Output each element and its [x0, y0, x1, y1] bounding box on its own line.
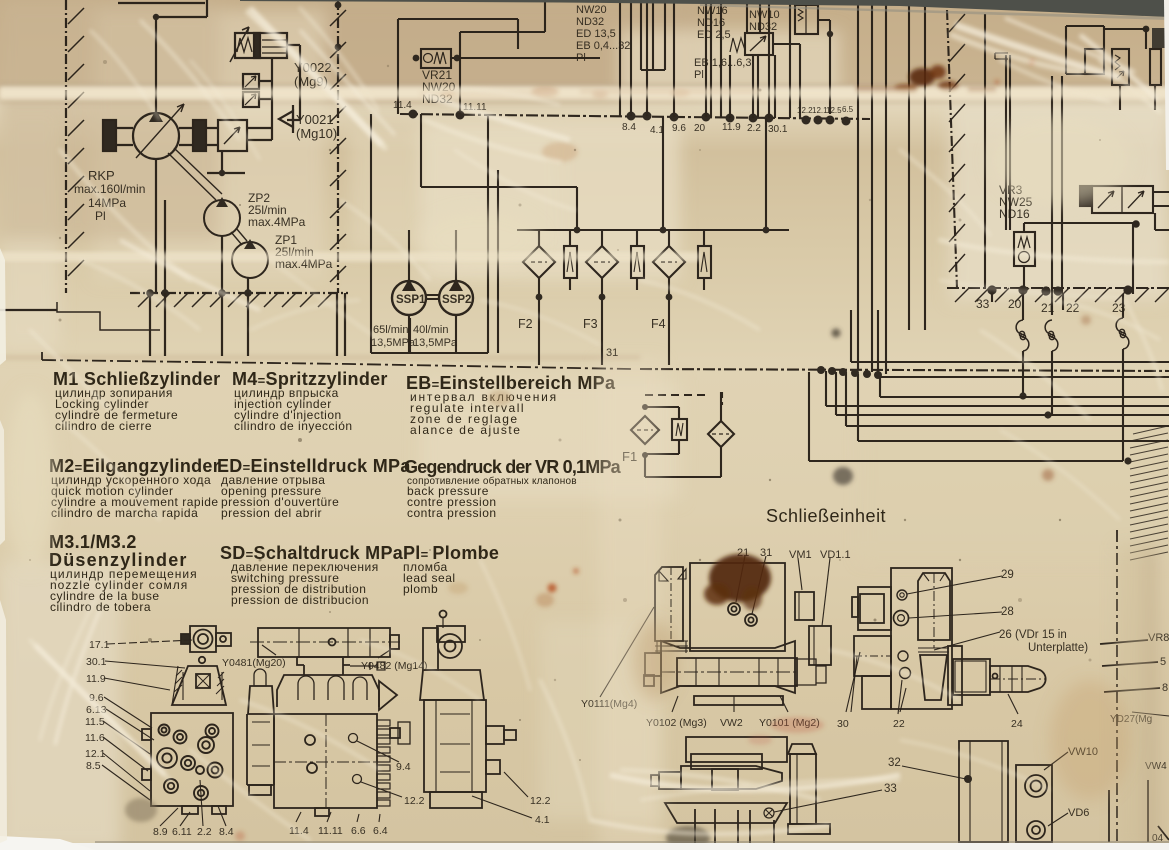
svg-text:21: 21	[1041, 301, 1055, 315]
svg-text:30: 30	[837, 718, 849, 730]
svg-text:30.1: 30.1	[86, 656, 107, 668]
svg-text:Gegendruck der VR 0,1MPa: Gegendruck der VR 0,1MPa	[404, 457, 622, 477]
svg-text:Y0481(Mg20): Y0481(Mg20)	[222, 657, 286, 669]
svg-text:ED 13,5: ED 13,5	[576, 28, 616, 40]
svg-text:11.9: 11.9	[86, 673, 106, 685]
svg-text:12.2: 12.2	[797, 106, 813, 115]
svg-text:VM1: VM1	[789, 549, 812, 561]
svg-text:cilindro de marcha rapida: cilindro de marcha rapida	[51, 506, 198, 520]
svg-text:max.160l/min: max.160l/min	[74, 182, 145, 196]
svg-text:8.9: 8.9	[153, 826, 168, 838]
svg-text:8.4: 8.4	[622, 122, 636, 133]
svg-text:Schließeinheit: Schließeinheit	[766, 506, 886, 526]
svg-text:6.6: 6.6	[351, 825, 366, 837]
svg-text:alance de ajuste: alance de ajuste	[410, 423, 521, 437]
svg-text:12.5: 12.5	[826, 106, 842, 115]
svg-text:5: 5	[1160, 656, 1166, 668]
svg-text:2.2: 2.2	[197, 826, 212, 838]
svg-text:40l/min: 40l/min	[413, 324, 448, 336]
svg-text:26 (VDr 15 in: 26 (VDr 15 in	[999, 629, 1067, 641]
svg-text:24: 24	[1011, 718, 1023, 730]
svg-text:33: 33	[976, 297, 990, 311]
svg-text:VW2: VW2	[720, 717, 743, 729]
svg-text:Pl: Pl	[576, 52, 586, 64]
svg-text:6.11: 6.11	[172, 826, 192, 838]
svg-text:Y0021: Y0021	[296, 112, 334, 127]
svg-text:11.4: 11.4	[393, 100, 412, 111]
svg-text:M3.1/M3.2: M3.1/M3.2	[49, 532, 137, 552]
svg-text:8.5: 8.5	[86, 760, 101, 772]
svg-text:8: 8	[1162, 682, 1168, 694]
svg-text:17.1: 17.1	[89, 639, 110, 651]
svg-text:31: 31	[606, 347, 618, 359]
svg-text:F3: F3	[583, 317, 598, 331]
svg-text:contra pression: contra pression	[407, 506, 497, 520]
svg-text:ND32: ND32	[749, 21, 777, 33]
svg-text:8.4: 8.4	[219, 826, 234, 838]
svg-text:2.2: 2.2	[747, 123, 761, 134]
svg-text:NW16: NW16	[697, 5, 728, 17]
svg-text:12.2: 12.2	[530, 795, 551, 807]
svg-text:VD1.1: VD1.1	[820, 549, 851, 561]
svg-text:EB 1,6...6,3: EB 1,6...6,3	[694, 57, 751, 69]
svg-text:11.6: 11.6	[85, 732, 105, 744]
svg-text:pression del abrir: pression del abrir	[221, 506, 322, 520]
svg-text:ED 2,5: ED 2,5	[697, 29, 731, 41]
svg-text:max.4MPa: max.4MPa	[248, 215, 306, 229]
svg-text:(Mg10): (Mg10)	[296, 126, 337, 141]
svg-text:31: 31	[760, 547, 772, 559]
svg-text:65l/min: 65l/min	[373, 324, 408, 336]
svg-text:20: 20	[694, 123, 706, 134]
svg-text:pression de distribucion: pression de distribucion	[231, 593, 369, 607]
svg-text:13,5MPa: 13,5MPa	[413, 337, 458, 349]
svg-text:11.9: 11.9	[722, 122, 741, 133]
svg-text:28: 28	[1001, 606, 1014, 618]
svg-text:30.1: 30.1	[768, 124, 788, 135]
svg-text:20: 20	[1008, 297, 1022, 311]
svg-text:12.2: 12.2	[404, 795, 425, 807]
svg-text:11.5: 11.5	[85, 716, 105, 728]
svg-text:F2: F2	[518, 317, 533, 331]
svg-text:Pl: Pl	[95, 209, 106, 223]
svg-text:VD6: VD6	[1068, 807, 1089, 819]
svg-text:22: 22	[893, 718, 905, 730]
svg-text:SSP1: SSP1	[396, 294, 426, 306]
svg-text:NW10: NW10	[749, 9, 780, 21]
svg-text:11.11: 11.11	[318, 825, 343, 837]
svg-text:EB 0,4...32: EB 0,4...32	[576, 40, 630, 52]
svg-text:29: 29	[1001, 569, 1014, 581]
svg-text:33: 33	[884, 783, 897, 795]
svg-text:12.1: 12.1	[85, 748, 106, 760]
svg-text:ND16: ND16	[999, 207, 1030, 221]
svg-text:plomb: plomb	[403, 582, 438, 596]
svg-text:RKP: RKP	[88, 168, 115, 183]
svg-text:32: 32	[888, 757, 901, 769]
svg-text:F4: F4	[651, 317, 666, 331]
svg-text:4.1: 4.1	[650, 125, 664, 136]
svg-text:NW20: NW20	[576, 4, 607, 16]
svg-text:9.6: 9.6	[672, 123, 686, 134]
svg-text:9.4: 9.4	[396, 761, 411, 773]
svg-text:6.4: 6.4	[373, 825, 388, 837]
svg-text:ND32: ND32	[576, 16, 604, 28]
svg-text:6.5: 6.5	[842, 105, 854, 114]
svg-text:cilindro de inyección: cilindro de inyección	[234, 419, 353, 433]
svg-text:Unterplatte): Unterplatte)	[1028, 642, 1088, 654]
svg-text:ND16: ND16	[697, 17, 725, 29]
svg-text:4.1: 4.1	[535, 814, 550, 826]
svg-text:Pl: Pl	[694, 69, 704, 81]
svg-text:SSP2: SSP2	[442, 294, 471, 306]
svg-text:23: 23	[1112, 301, 1126, 315]
